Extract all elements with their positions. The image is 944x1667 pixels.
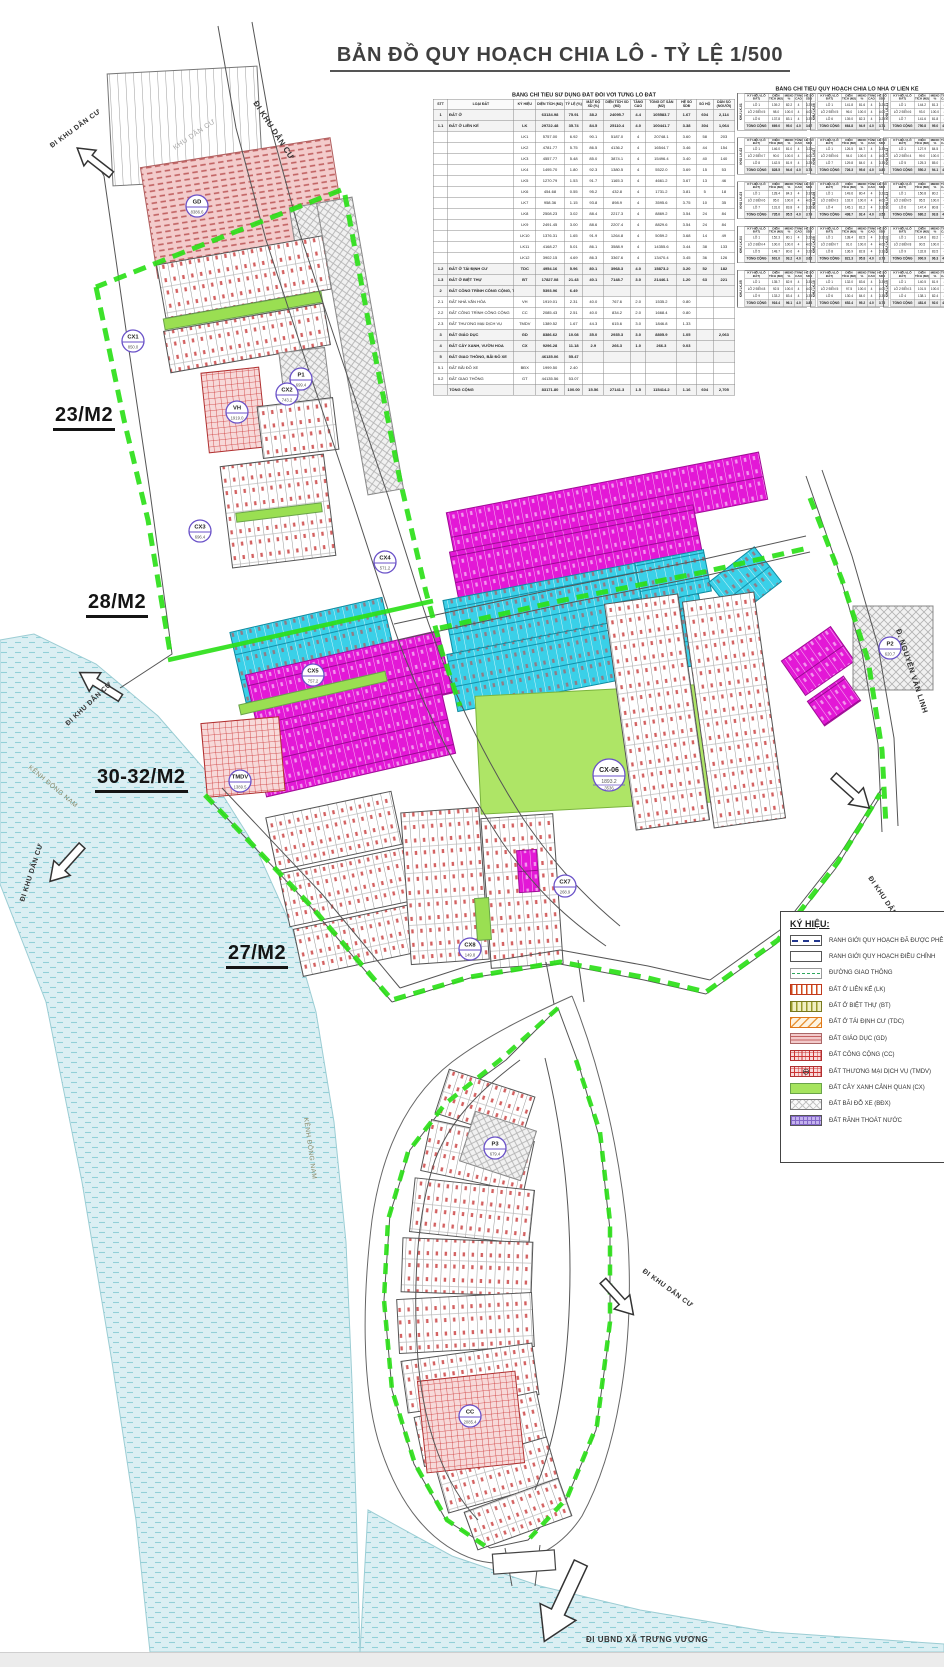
t1-cell: [696, 296, 713, 307]
t2-cell: 83.8: [784, 204, 795, 211]
t2-group: KHU LK-04KÝ HIỆU (LÔ ĐẤT)DIỆN TÍCH (M2)M…: [737, 226, 807, 263]
t2-cell: TỔNG CỘNG: [891, 300, 915, 307]
t2-cell: 4: [794, 160, 803, 167]
t2-cell: LÔ 6: [891, 204, 915, 211]
t2-col-header: KÝ HIỆU (LÔ ĐẤT): [818, 227, 842, 235]
t2-cell: 481.6: [914, 300, 930, 307]
bt-swatch-icon: [790, 1001, 822, 1012]
t2-cell: 80.2: [930, 190, 941, 197]
t2-cell: LÔ 1: [745, 279, 769, 286]
t1-cell: 1.1: [433, 120, 448, 131]
t2-group: KHU LK-10KÝ HIỆU (LÔ ĐẤT)DIỆN TÍCH (M2)M…: [810, 270, 880, 307]
t1-cell: 24: [696, 219, 713, 230]
t1-cell: 3.54: [677, 208, 697, 219]
t2-col-header: MĐXD %: [857, 271, 868, 279]
t1-cell: [646, 285, 677, 296]
t2-cell: 141.6: [914, 116, 930, 123]
zone-area2: 3536: [604, 786, 614, 791]
t2-cell: 82.5: [857, 234, 868, 241]
t2-cell: TỔNG CỘNG: [818, 300, 842, 307]
t1-cell: 8386.62: [536, 329, 565, 340]
t2-khu-label: KHU LK-02: [738, 138, 745, 174]
t2-cell: 100.0: [768, 241, 784, 248]
t1-cell: [677, 351, 697, 362]
t2-cell: TỔNG CỘNG: [891, 123, 915, 130]
t1-cell: 221: [713, 274, 735, 285]
t1-cell: 21446.1: [646, 274, 677, 285]
t1-cell: 88.4: [583, 208, 604, 219]
t1-cell: [433, 197, 448, 208]
zone-code: P2: [886, 642, 893, 648]
t2-group: KHU LK-08KÝ HIỆU (LÔ ĐẤT)DIỆN TÍCH (M2)M…: [810, 182, 880, 219]
t2-cell: 664.8: [841, 123, 857, 130]
t1-cell: 1.67: [677, 109, 697, 120]
t2-cell: TỔNG CỘNG: [745, 123, 769, 130]
t1-cell: [433, 153, 448, 164]
t2-cell: 4: [794, 293, 803, 300]
t2-col-header: DIỆN TÍCH (M2): [914, 227, 930, 235]
t2-cell: 95.5: [784, 211, 795, 218]
t2-col-header: TẦNG CAO: [794, 94, 803, 102]
t2-cell: 95.0: [768, 197, 784, 204]
t1-cell: LK3: [514, 153, 536, 164]
t2-col-header: KÝ HIỆU (LÔ ĐẤT): [891, 182, 915, 190]
t1-cell: 0.80: [677, 307, 697, 318]
t1-cell: 3968.3: [604, 263, 631, 274]
t2-cell: LÔ 5: [891, 160, 915, 167]
t1-cell: 8829.6: [646, 219, 677, 230]
t2-col-header: MĐXD %: [930, 182, 941, 190]
t2-cell: LÔ 7: [745, 204, 769, 211]
t1-cell: [433, 175, 448, 186]
t2-col-header: TẦNG CAO: [867, 94, 876, 102]
t2-cell: 4.0: [867, 255, 876, 262]
t2-col-header: TẦNG CAO: [940, 94, 944, 102]
t2-cell: TỔNG CỘNG: [745, 255, 769, 262]
zone-area: 1919.0: [231, 416, 244, 421]
t1-cell: LK4: [514, 164, 536, 175]
t2-col-header: MĐXD %: [857, 182, 868, 190]
t2-cell: LÔ 6: [745, 116, 769, 123]
t2-cell: 81.8: [930, 116, 941, 123]
t2-col-header: KÝ HIỆU (LÔ ĐẤT): [891, 94, 915, 102]
t2-cell: 80.1: [784, 234, 795, 241]
t2-cell: 82.3: [857, 116, 868, 123]
t2-khu-label: KHU LK-15: [884, 271, 891, 307]
t2-cell: 93.2: [784, 255, 795, 262]
t1-cell: 46: [713, 175, 735, 186]
t1-cell: 4: [630, 153, 646, 164]
t1-cell: [696, 373, 713, 384]
t1-cell: 604: [696, 384, 713, 395]
t2-cell: 4: [940, 109, 944, 116]
t1-cell: BT: [514, 274, 536, 285]
t1-cell: 182: [713, 263, 735, 274]
t1-cell: [604, 373, 631, 384]
t1-cell: 3.40: [677, 153, 697, 164]
t1-cell: 10.08: [564, 329, 583, 340]
t2-cell: LÔ 6: [818, 116, 842, 123]
t1-cell: 3.0: [630, 274, 646, 285]
zone-marker-GD: GD8386.6: [186, 195, 208, 217]
t1-cell: 105583.7: [646, 109, 677, 120]
t1-cell: [583, 351, 604, 362]
t1-cell: [514, 109, 536, 120]
t2-cell: 81.3: [930, 102, 941, 109]
t2-cell: 100.0: [784, 153, 795, 160]
t1-cell: 4661.2: [646, 175, 677, 186]
t1-cell: 35.74: [564, 120, 583, 131]
t1-cell: [448, 252, 514, 263]
zone-area: 268.9: [560, 890, 571, 895]
t1-cell: GT: [514, 373, 536, 384]
t2-cell: 4: [867, 190, 876, 197]
legend-item-bt: ĐẤT Ở BIỆT THỰ (BT): [790, 1001, 944, 1012]
t1-cell: 3.54: [677, 219, 697, 230]
t1-cell: 3.44: [677, 241, 697, 252]
t2-cell: 680.2: [914, 211, 930, 218]
t1-cell: 63134.98: [536, 109, 565, 120]
t2-cell: LÔ 2 ĐẾN 5: [891, 197, 915, 204]
t2-cell: 4: [867, 286, 876, 293]
t1-cell: 13470.4: [646, 252, 677, 263]
zone-marker-CX7: CX7268.9: [554, 875, 576, 897]
t1-cell: [448, 153, 514, 164]
t2-cell: 147.4: [914, 204, 930, 211]
t2-cell: 4.0: [794, 123, 803, 130]
t1-cell: LK10: [514, 230, 536, 241]
legend-label: RANH GIỚI QUY HOẠCH ĐÃ ĐƯỢC PHÊ DUYỆT: [829, 938, 944, 944]
t2-cell: 90.5: [914, 241, 930, 248]
t1-cell: 1,064: [713, 120, 735, 131]
lot-block-lotsW: [401, 1238, 533, 1297]
t1-cell: LK11: [514, 241, 536, 252]
t2-khu-label: KHU LK-09: [811, 226, 818, 262]
t1-cell: 92.3: [583, 164, 604, 175]
t1-cell: 5393.96: [536, 285, 565, 296]
t2-cell: 4: [940, 279, 944, 286]
t2-col-header: KÝ HIỆU (LÔ ĐẤT): [745, 271, 769, 279]
t2-col-header: MĐXD %: [930, 271, 941, 279]
zone-marker-P3: P3679.4: [484, 1137, 506, 1159]
t1-cell: 4.69: [564, 252, 583, 263]
t2-cell: 84.7: [857, 146, 868, 153]
t2-cell: 95.8: [857, 255, 868, 262]
legend-item-tmdv: ⊖ĐẤT THƯƠNG MẠI DỊCH VỤ (TMDV): [790, 1066, 944, 1077]
t2-cell: LÔ 1: [745, 190, 769, 197]
t2-cell: 4.0: [867, 300, 876, 307]
t2-cell: 100.0: [930, 197, 941, 204]
t1-cell: 3595.6: [646, 197, 677, 208]
t2-cell: LÔ 6: [818, 293, 842, 300]
legend-item-adjusted: RANH GIỚI QUY HOẠCH ĐIỀU CHỈNH: [790, 951, 944, 962]
t2-cell: TỔNG CỘNG: [818, 255, 842, 262]
t2-cell: 145.1: [841, 204, 857, 211]
t1-cell: 140: [713, 153, 735, 164]
t2-cell: 81.0: [784, 146, 795, 153]
t1-cell: 84: [713, 219, 735, 230]
t1-cell: 1264.8: [604, 230, 631, 241]
t1-cell: 4.0: [630, 120, 646, 131]
zone-area: 1893.2: [601, 779, 617, 785]
t2-cell: 4: [940, 146, 944, 153]
t2-cell: 94.9: [857, 123, 868, 130]
t2-cell: LÔ 2 ĐẾN 3: [891, 286, 915, 293]
t1-cell: 84.5: [583, 120, 604, 131]
t2-cell: 4: [940, 293, 944, 300]
t2-cell: 96.3: [930, 255, 941, 262]
t2-group: KHU LK-11KÝ HIỆU (LÔ ĐẤT)DIỆN TÍCH (M2)M…: [883, 93, 944, 130]
t1-cell: [448, 131, 514, 142]
t2-cell: 4: [940, 153, 944, 160]
t2-cell: LÔ 1: [818, 146, 842, 153]
legend-label: ĐẤT Ở LIÊN KẾ (LK): [829, 987, 885, 993]
zone-code: CC: [466, 1410, 475, 1416]
t2-cell: 84.5: [930, 146, 941, 153]
legend-item-tdc: ĐẤT Ở TÁI ĐỊNH CƯ (TDC): [790, 1017, 944, 1028]
t2-cell: 4.0: [940, 123, 944, 130]
t1-cell: 2217.3: [604, 208, 631, 219]
t2-cell: 750.8: [914, 123, 930, 130]
t1-cell: ĐẤT NHÀ VĂN HÓA: [448, 296, 514, 307]
t2-col-header: TẦNG CAO: [940, 138, 944, 146]
t1-cell: 1.53: [564, 175, 583, 186]
t2-cell: 4: [794, 190, 803, 197]
t2-col-header: MĐXD %: [784, 182, 795, 190]
t2-cell: 4: [867, 241, 876, 248]
t2-cell: 148.7: [768, 248, 784, 255]
t1-cell: 2.2: [433, 307, 448, 318]
t2-col-header: KÝ HIỆU (LÔ ĐẤT): [818, 138, 842, 146]
t2-column: KHU LK-11KÝ HIỆU (LÔ ĐẤT)DIỆN TÍCH (M2)M…: [883, 93, 944, 314]
t2-cell: LÔ 7: [818, 160, 842, 167]
sheet-label: 30-32/M2: [95, 766, 188, 793]
t1-cell: 1.20: [677, 274, 697, 285]
t1-cell: 126: [713, 252, 735, 263]
t1-cell: [604, 362, 631, 373]
t1-cell: [646, 351, 677, 362]
cx-swatch-icon: [790, 1083, 822, 1094]
t2-cell: 4: [867, 109, 876, 116]
t2-col-header: DIỆN TÍCH (M2): [768, 138, 784, 146]
t1-cell: 3902.15: [536, 252, 565, 263]
t1-cell: [433, 252, 448, 263]
lot-block-lotsW: [257, 398, 339, 459]
t2-cell: 152.3: [768, 234, 784, 241]
t1-cell: 15873.2: [646, 263, 677, 274]
t2-cell: LÔ 2 ĐẾN 4: [891, 153, 915, 160]
t2-col-header: DIỆN TÍCH (M2): [841, 271, 857, 279]
t1-cell: [677, 373, 697, 384]
land-use-table-title: BẢNG CHỈ TIÊU SỬ DỤNG ĐẤT ĐỐI VỚI TỪNG L…: [433, 92, 735, 98]
t1-cell: 1165.3: [604, 175, 631, 186]
t2-cell: 139.0: [841, 116, 857, 123]
t2-cell: 81.9: [784, 160, 795, 167]
zone-code: CX4: [379, 556, 391, 562]
t1-cell: 3.46: [677, 142, 697, 153]
t2-cell: 4: [867, 204, 876, 211]
zone-area: 699.4: [296, 383, 307, 388]
t2-cell: 134.6: [914, 234, 930, 241]
t1-cell: 2.9: [583, 340, 604, 351]
t2-cell: 102.0: [841, 197, 857, 204]
sheet-label: 28/M2: [86, 591, 148, 618]
t1-cell: TỔNG CỘNG: [448, 384, 514, 395]
t2-cell: LÔ 2 ĐẾN 5: [818, 286, 842, 293]
t1-cell: 80.1: [583, 263, 604, 274]
t1-cell: 52: [696, 263, 713, 274]
t1-cell: [433, 384, 448, 395]
t2-cell: 83.6: [857, 279, 868, 286]
t2-group: KHU LK-02KÝ HIỆU (LÔ ĐẤT)DIỆN TÍCH (M2)M…: [737, 137, 807, 174]
zone-code: VH: [233, 406, 241, 412]
tmdv-symbol-icon: ⊖: [802, 1067, 810, 1076]
t2-cell: 4: [794, 234, 803, 241]
legend-item-cc: ĐẤT CÔNG CỘNG (CC): [790, 1050, 944, 1061]
t1-cell: [713, 307, 735, 318]
t1-col-header: LOẠI ĐẤT: [448, 99, 514, 109]
t1-cell: 1.3: [433, 274, 448, 285]
t2-col-header: TẦNG CAO: [867, 271, 876, 279]
t2-cell: 100.0: [857, 286, 868, 293]
t2-cell: 83.4: [784, 293, 795, 300]
t2-col-header: TẦNG CAO: [867, 227, 876, 235]
t1-cell: 3.67: [677, 175, 697, 186]
t1-cell: 4: [433, 340, 448, 351]
t2-col-header: DIỆN TÍCH (M2): [841, 94, 857, 102]
t1-cell: [677, 362, 697, 373]
t2-group: KHU LK-03KÝ HIỆU (LÔ ĐẤT)DIỆN TÍCH (M2)M…: [737, 182, 807, 219]
legend-label: RANH GIỚI QUY HOẠCH ĐIỀU CHỈNH: [829, 954, 935, 960]
t1-cell: 4: [630, 175, 646, 186]
t2-cell: LÔ 4: [818, 204, 842, 211]
t2-col-header: DIỆN TÍCH (M2): [914, 138, 930, 146]
t2-group: KHU LK-13KÝ HIỆU (LÔ ĐẤT)DIỆN TÍCH (M2)M…: [883, 182, 944, 219]
t2-cell: LÔ 2 ĐẾN 8: [745, 286, 769, 293]
t1-cell: 3.60: [677, 131, 697, 142]
t1-cell: 898.9: [604, 197, 631, 208]
t1-cell: 2508.23: [536, 208, 565, 219]
t2-cell: 96.1: [784, 300, 795, 307]
zone-marker-CC: CC2085.4: [459, 1405, 481, 1427]
t2-cell: 128.4: [768, 190, 784, 197]
t1-cell: 133: [713, 241, 735, 252]
t1-cell: ĐẤT CÂY XANH, VƯỜN HOA: [448, 340, 514, 351]
t1-cell: 1.15: [564, 197, 583, 208]
t1-cell: 1535.2: [646, 296, 677, 307]
t1-cell: [677, 285, 697, 296]
t2-col-header: MĐXD %: [857, 138, 868, 146]
tmdv-swatch-icon: ⊖: [790, 1066, 822, 1077]
t2-cell: 4.0: [867, 167, 876, 174]
t2-cell: LÔ 5: [745, 248, 769, 255]
t1-cell: ĐẤT BÃI ĐỖ XE: [448, 362, 514, 373]
t2-cell: LÔ 1: [745, 102, 769, 109]
t1-cell: LK12: [514, 252, 536, 263]
road-label: ĐI UBND XÃ TRƯNG VƯƠNG: [586, 1635, 708, 1644]
zone-marker-CX-06: CX-061893.23536: [593, 759, 625, 791]
t1-cell: CX: [514, 340, 536, 351]
t1-cell: [448, 164, 514, 175]
t2-cell: 100.0: [784, 241, 795, 248]
t1-cell: 1668.4: [646, 307, 677, 318]
t2-cell: 498.7: [841, 211, 857, 218]
t2-cell: 150.8: [914, 190, 930, 197]
t1-cell: 454.68: [536, 186, 565, 197]
t1-cell: ĐẤT Ở BIỆT THỰ: [448, 274, 514, 285]
t2-cell: 4: [794, 279, 803, 286]
t2-cell: 4.0: [940, 211, 944, 218]
t1-cell: 55.47: [564, 351, 583, 362]
adjusted-swatch-icon: [790, 951, 822, 962]
zone-code: CX-06: [599, 767, 619, 774]
t1-cell: 767.6: [604, 296, 631, 307]
t1-cell: 154: [713, 142, 735, 153]
t1-cell: 3.38: [677, 120, 697, 131]
t1-cell: [583, 373, 604, 384]
t2-cell: 100.0: [930, 153, 941, 160]
t2-col-header: TẦNG CAO: [794, 138, 803, 146]
t1-cell: 115414.2: [646, 384, 677, 395]
t1-col-header: KÝ HIỆU: [514, 99, 536, 109]
t1-cell: [696, 329, 713, 340]
t2-cell: 95.2: [857, 300, 868, 307]
t2-khu-label: KHU LK-13: [884, 182, 891, 218]
t1-cell: [448, 142, 514, 153]
t1-cell: 53: [713, 164, 735, 175]
t1-cell: [514, 285, 536, 296]
t2-cell: 4.0: [794, 211, 803, 218]
t1-cell: 1731.2: [646, 186, 677, 197]
t2-khu-label: KHU LK-08: [811, 182, 818, 218]
t1-cell: 1.67: [564, 318, 583, 329]
legend-label: ĐẤT CÂY XANH CẢNH QUAN (CX): [829, 1085, 925, 1091]
t1-cell: 5.75: [564, 142, 583, 153]
t1-col-header: TẦNG CAO: [630, 99, 646, 109]
rowhouse-table-title: BẢNG CHỈ TIÊU QUY HOẠCH CHIA LÔ NHÀ Ở LI…: [737, 86, 944, 92]
sheet-label: 27/M2: [226, 942, 288, 969]
t1-cell: 1.33: [677, 318, 697, 329]
zone-code: CX1: [127, 335, 139, 341]
t2-col-header: KÝ HIỆU (LÔ ĐẤT): [891, 227, 915, 235]
t2-cell: 136.9: [841, 248, 857, 255]
t1-cell: 1.65: [564, 230, 583, 241]
t1-cell: 3.02: [564, 208, 583, 219]
t1-cell: 91.7: [583, 175, 604, 186]
t1-cell: LK2: [514, 142, 536, 153]
t1-cell: 4: [630, 186, 646, 197]
t1-cell: 1.2: [433, 263, 448, 274]
legend-label: ĐẤT Ở TÁI ĐỊNH CƯ (TDC): [829, 1019, 904, 1025]
t1-cell: TMDV: [514, 318, 536, 329]
t1-cell: GD: [514, 329, 536, 340]
t2-cell: 139.2: [768, 102, 784, 109]
t1-cell: 3.81: [677, 186, 697, 197]
legend-label: ĐẤT RÃNH THOÁT NƯỚC: [829, 1118, 902, 1124]
t1-cell: 4.4: [630, 109, 646, 120]
t2-col-header: MĐXD %: [784, 227, 795, 235]
t2-cell: TỔNG CỘNG: [745, 300, 769, 307]
t2-cell: 4: [867, 293, 876, 300]
t1-cell: 24: [696, 208, 713, 219]
t2-group: KHU LK-15KÝ HIỆU (LÔ ĐẤT)DIỆN TÍCH (M2)M…: [883, 270, 944, 307]
t1-col-header: MẬT ĐỘ XD (%): [583, 99, 604, 109]
t2-group: KHU LK-01KÝ HIỆU (LÔ ĐẤT)DIỆN TÍCH (M2)M…: [737, 93, 807, 130]
t2-cell: TỔNG CỘNG: [745, 167, 769, 174]
t1-cell: [448, 230, 514, 241]
zone-marker-CX1: CX1850.0: [122, 330, 144, 352]
t2-cell: 140.5: [914, 279, 930, 286]
